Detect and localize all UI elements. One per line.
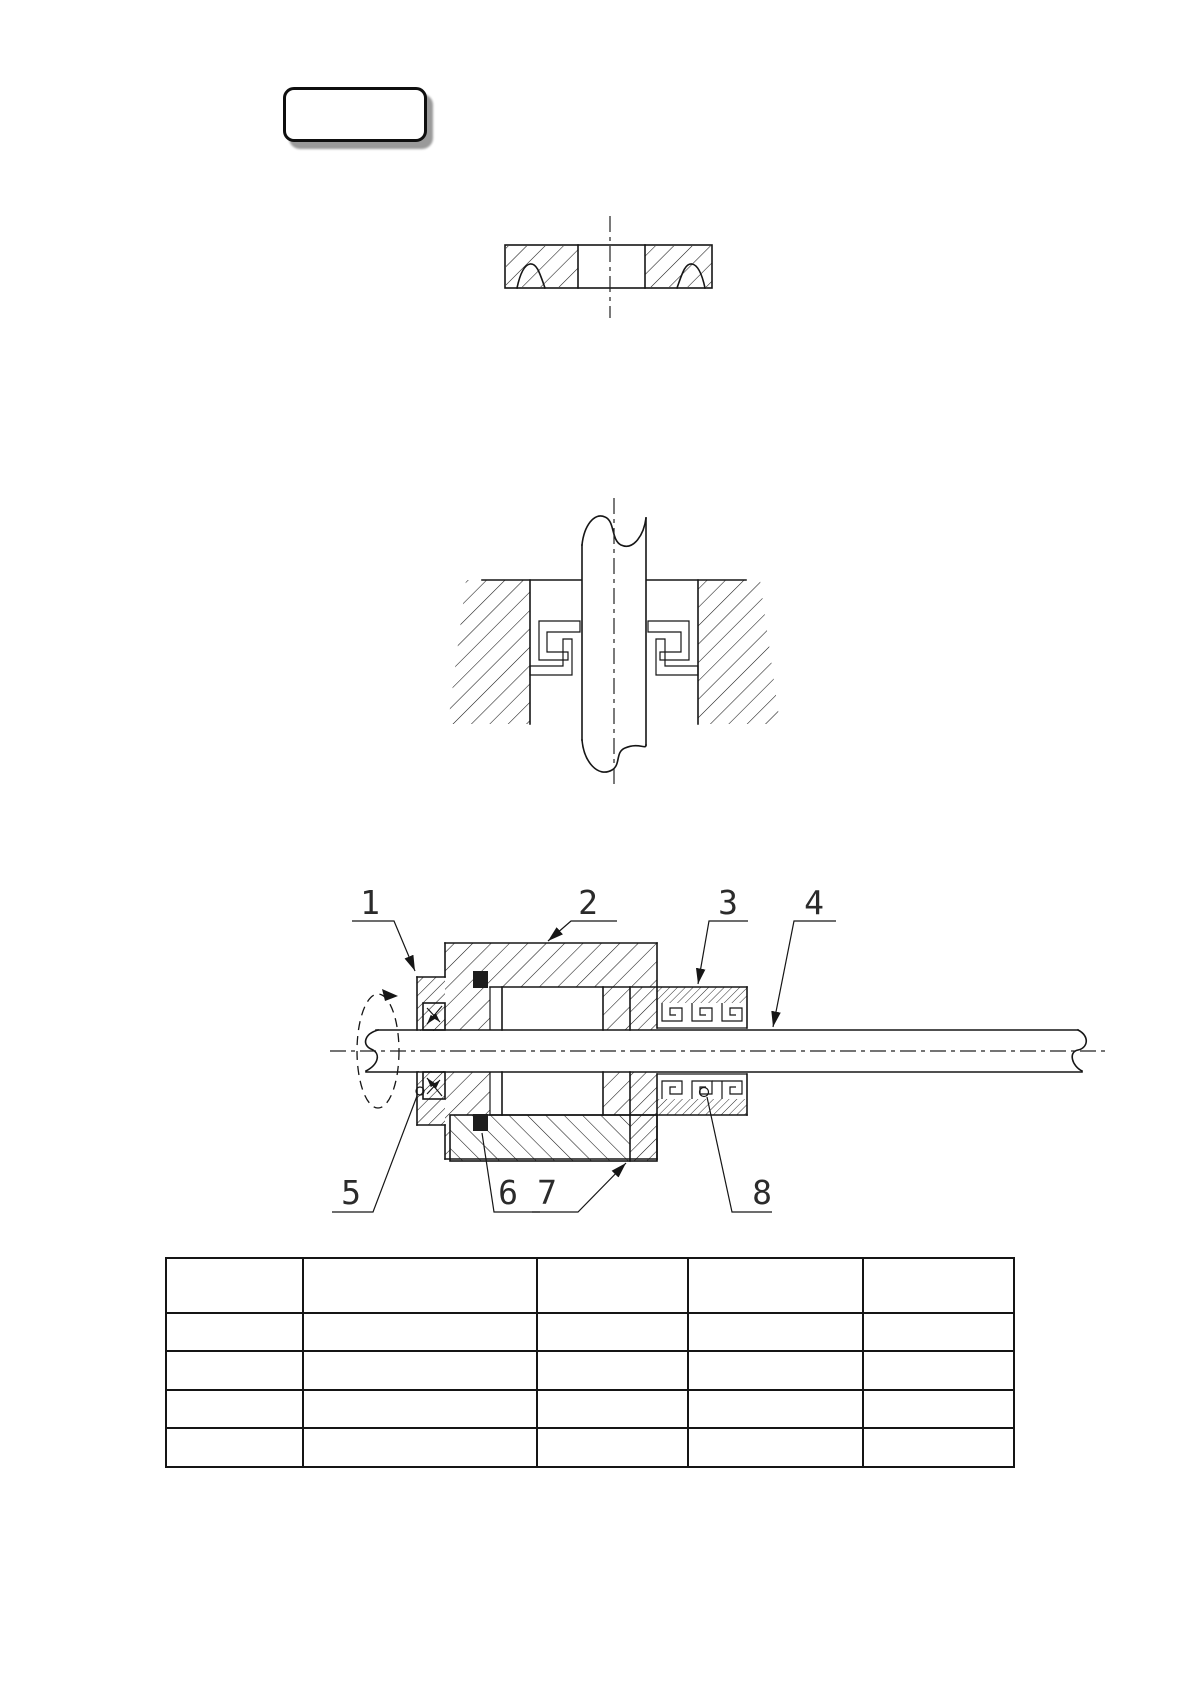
callout-number: 6 <box>498 1173 518 1212</box>
document-page: 1 2 3 4 5 6 7 <box>0 0 1191 1684</box>
table-cell <box>303 1351 537 1390</box>
housing-wall-right <box>698 580 780 724</box>
table-cell <box>303 1390 537 1428</box>
table-cell <box>863 1258 1014 1313</box>
callout-7: 7 <box>532 1163 626 1212</box>
table-cell <box>863 1351 1014 1390</box>
table-row <box>166 1313 1014 1351</box>
table-cell <box>863 1390 1014 1428</box>
labyrinth-seal-left <box>530 621 580 675</box>
table-cell <box>166 1428 303 1467</box>
rotation-arrowhead <box>382 989 398 1001</box>
table-cell <box>303 1258 537 1313</box>
labyrinth-seal-right <box>648 621 698 675</box>
table-cell <box>166 1258 303 1313</box>
table-cell <box>303 1428 537 1467</box>
callout-1: 1 <box>352 883 415 971</box>
table-cell <box>537 1390 688 1428</box>
felt-packing-bottom <box>473 1114 488 1131</box>
table-cell <box>537 1428 688 1467</box>
table-row <box>166 1428 1014 1467</box>
assembly-figure: 1 2 3 4 5 6 7 <box>330 883 1108 1212</box>
callout-4: 4 <box>773 883 836 1027</box>
table-cell <box>863 1313 1014 1351</box>
table-cell <box>166 1313 303 1351</box>
table-row <box>166 1390 1014 1428</box>
table-cell <box>688 1390 863 1428</box>
callout-number: 1 <box>360 883 380 922</box>
callout-number: 8 <box>752 1173 772 1212</box>
callout-number: 7 <box>537 1173 557 1212</box>
housing-wall-left <box>448 580 530 724</box>
callout-number: 4 <box>804 883 824 922</box>
callout-number: 2 <box>578 883 598 922</box>
table-row <box>166 1351 1014 1390</box>
table-cell <box>537 1313 688 1351</box>
table-cell <box>688 1428 863 1467</box>
bearing-cavity-bottom <box>502 1072 603 1115</box>
table-cell <box>863 1428 1014 1467</box>
table-cell <box>537 1258 688 1313</box>
shaft-seal-section-figure <box>448 498 780 788</box>
callout-2: 2 <box>548 883 617 941</box>
table-cell <box>303 1313 537 1351</box>
labyrinth-flange-hatch <box>657 987 747 1003</box>
table-cell <box>688 1351 863 1390</box>
felt-ring-section-figure <box>505 216 712 318</box>
parts-table <box>165 1257 1015 1468</box>
table-cell <box>688 1313 863 1351</box>
callout-5: 5 <box>332 1096 417 1212</box>
table-header-row <box>166 1258 1014 1313</box>
callout-number: 5 <box>341 1173 361 1212</box>
table-cell <box>166 1351 303 1390</box>
table-cell <box>688 1258 863 1313</box>
table-cell <box>537 1351 688 1390</box>
table-cell <box>166 1390 303 1428</box>
felt-packing-top <box>473 971 488 988</box>
bearing-cavity-top <box>502 987 603 1030</box>
callout-3: 3 <box>698 883 748 984</box>
callout-number: 3 <box>718 883 738 922</box>
